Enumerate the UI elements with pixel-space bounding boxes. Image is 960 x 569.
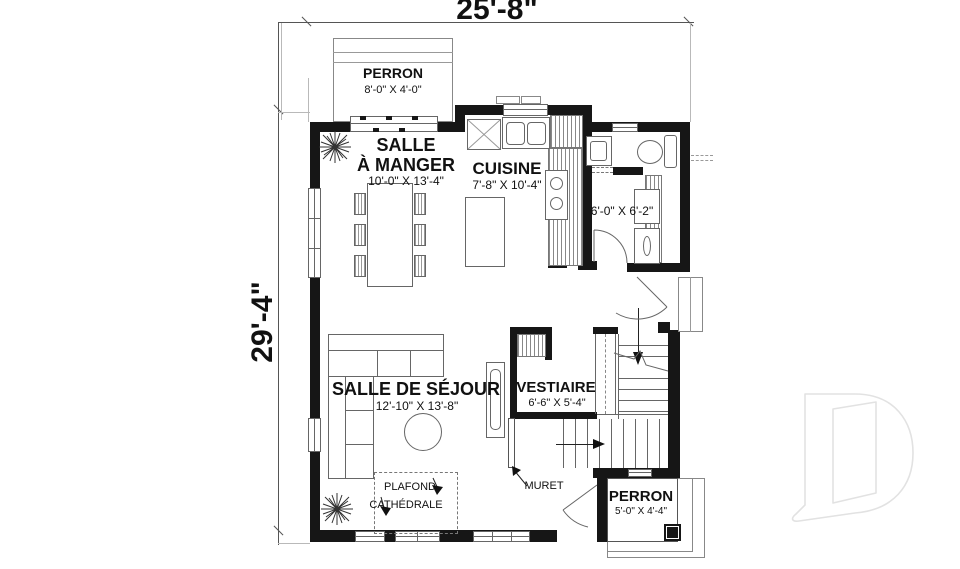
- dimension-line-top: [278, 22, 694, 23]
- dining-chair: [354, 224, 366, 246]
- window-line: [629, 472, 651, 473]
- sink-basin: [527, 122, 546, 145]
- vestibule-closet-right: [545, 330, 552, 360]
- dining-chair: [354, 255, 366, 277]
- toilet-bowl: [637, 140, 663, 164]
- muret-label: MURET: [524, 481, 563, 492]
- bath-opening-dashed: [592, 172, 613, 173]
- kitchen-name: CUISINE: [473, 160, 542, 177]
- eave-dashed: [691, 160, 713, 161]
- sofa-line: [346, 444, 373, 445]
- extension-line: [278, 112, 310, 113]
- sink-basin: [506, 122, 525, 145]
- perron-top-name: PERRON: [363, 66, 423, 80]
- bath-sink: [590, 141, 607, 161]
- exterior-wall-utility-bottom: [627, 263, 690, 272]
- perron-bottom-name: PERRON: [609, 489, 673, 504]
- stair-arrow-down-head: [633, 352, 643, 365]
- stair-arrow-down-stem: [638, 308, 639, 354]
- stair-tread: [659, 419, 660, 468]
- dining-dims: 10'-0" X 13'-4": [368, 175, 444, 187]
- living-dims: 12'-10" X 13'-8": [376, 400, 458, 412]
- window-mullion: [373, 128, 379, 132]
- exterior-wall-left: [310, 122, 320, 542]
- window-stair-bottom: [628, 469, 652, 477]
- dining-name-line1: SALLE: [376, 136, 435, 154]
- utility-dims: 6'-0" X 6'-2": [591, 205, 653, 217]
- vestibule-closet-shelf: [517, 334, 546, 357]
- window-line: [308, 218, 321, 219]
- window-mullion: [412, 116, 418, 120]
- vestibule-rod-cap: [593, 327, 618, 334]
- window-line: [314, 419, 315, 451]
- dishwasher: [467, 119, 501, 150]
- living-name: SALLE DE SÉJOUR: [332, 380, 500, 398]
- stair-tread: [618, 400, 668, 401]
- dining-chair: [414, 193, 426, 215]
- entry-landing-line: [690, 277, 691, 332]
- window-line: [504, 109, 547, 110]
- dining-table: [367, 183, 413, 287]
- vestibule-wall-left: [510, 330, 517, 418]
- stove-burner: [550, 177, 563, 190]
- dining-chair: [414, 224, 426, 246]
- dining-chair: [354, 193, 366, 215]
- stair-tread: [618, 378, 668, 379]
- window-line: [308, 248, 321, 249]
- stair-tread: [635, 419, 636, 468]
- window-line: [356, 536, 384, 537]
- exterior-wall-right-lower: [668, 330, 680, 478]
- eave-dashed: [691, 155, 713, 156]
- dimension-height-label: 29'-4": [248, 281, 278, 362]
- stair-edge: [618, 334, 619, 419]
- window-line: [314, 189, 315, 277]
- stair-tread: [611, 419, 612, 468]
- window-line: [474, 536, 529, 537]
- interior-wall-bath-utility: [613, 167, 643, 175]
- window-mullion: [386, 116, 392, 120]
- window-sill: [521, 96, 541, 104]
- window-mullion: [399, 128, 405, 132]
- vestibule-dims: 6'-6" X 5'-4": [528, 398, 585, 409]
- extension-line: [690, 23, 691, 122]
- plant-icon: [316, 128, 354, 166]
- stair-tread: [647, 419, 648, 468]
- extension-line: [308, 78, 309, 122]
- logo-watermark-d: [775, 372, 930, 537]
- extension-line: [278, 543, 310, 544]
- appliance-detail: [643, 236, 651, 256]
- stair-tread: [618, 411, 668, 412]
- sofa-line: [329, 350, 443, 351]
- sofa-line: [377, 351, 378, 377]
- kitchen-counter: [550, 115, 583, 148]
- ceiling-label-line2: CATHÉDRALE: [369, 500, 442, 511]
- closet-rod-side: [615, 334, 616, 414]
- stair-landing-line: [597, 414, 668, 415]
- muret-low-wall: [508, 418, 515, 468]
- floor-plan: 25'-8" 29'-4" PERRON 8'-0" X 4'-0": [0, 0, 960, 569]
- perron-top-dims: 8'-0" X 4'-0": [364, 85, 421, 96]
- vestibule-name: VESTIAIRE: [516, 380, 595, 395]
- stair-tread: [618, 389, 668, 390]
- window-line: [492, 531, 493, 542]
- ceiling-label-line1: PLAFOND: [384, 482, 436, 493]
- stair-arrow-right-stem: [556, 444, 594, 445]
- kitchen-dims: 7'-8" X 10'-4": [472, 179, 541, 191]
- closet-rod-dashed: [605, 334, 606, 414]
- stair-tread: [618, 345, 668, 346]
- closet-rod-side: [595, 334, 596, 414]
- stair-tread: [618, 356, 668, 357]
- window-sill: [496, 96, 520, 104]
- perron-post: [666, 526, 679, 539]
- back-door-opening: [557, 530, 597, 542]
- stair-arrow-right-head: [593, 439, 605, 449]
- ottoman: [404, 413, 442, 451]
- kitchen-island: [465, 197, 505, 267]
- sofa-line: [346, 410, 373, 411]
- toilet-tank: [664, 135, 677, 168]
- window-line: [351, 123, 437, 124]
- dimension-line-left: [278, 23, 279, 545]
- window-line: [511, 531, 512, 542]
- vestibule-wall-bottom: [510, 412, 597, 419]
- sofa-top-section: [328, 334, 444, 377]
- perron-bottom-dims: 5'-0" X 4'-4": [615, 507, 667, 517]
- extension-line: [281, 23, 282, 120]
- window-mullion: [360, 116, 366, 120]
- window-line: [613, 127, 637, 128]
- stair-tread: [623, 419, 624, 468]
- dining-name-line2: À MANGER: [357, 156, 455, 174]
- sofa-line: [410, 351, 411, 377]
- exterior-wall-right-upper: [680, 122, 690, 272]
- bath-opening-dashed: [592, 167, 613, 168]
- stove-burner: [550, 197, 563, 210]
- window-kitchen-sink: [503, 104, 548, 116]
- plant-icon: [318, 490, 356, 528]
- plan-linework: [0, 0, 960, 569]
- perron-top-step: [333, 62, 453, 63]
- perron-top-step: [333, 52, 453, 53]
- dining-chair: [414, 255, 426, 277]
